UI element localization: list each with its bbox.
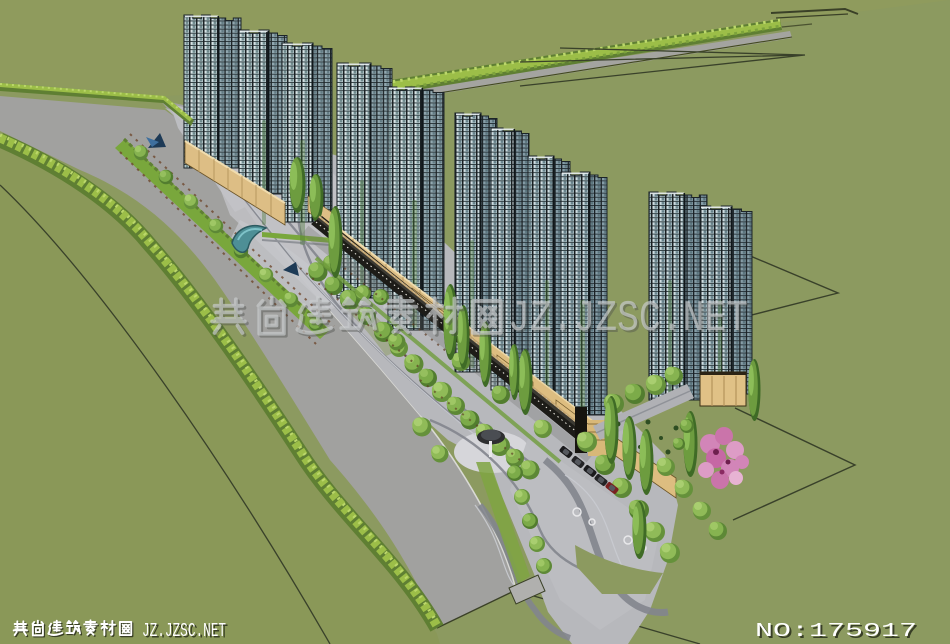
- svg-text:NO:175917: NO:175917: [755, 620, 917, 642]
- svg-text:JZ.JZSC.NET: JZ.JZSC.NET: [142, 620, 226, 642]
- svg-text:JZ.JZSC.NET: JZ.JZSC.NET: [508, 294, 748, 344]
